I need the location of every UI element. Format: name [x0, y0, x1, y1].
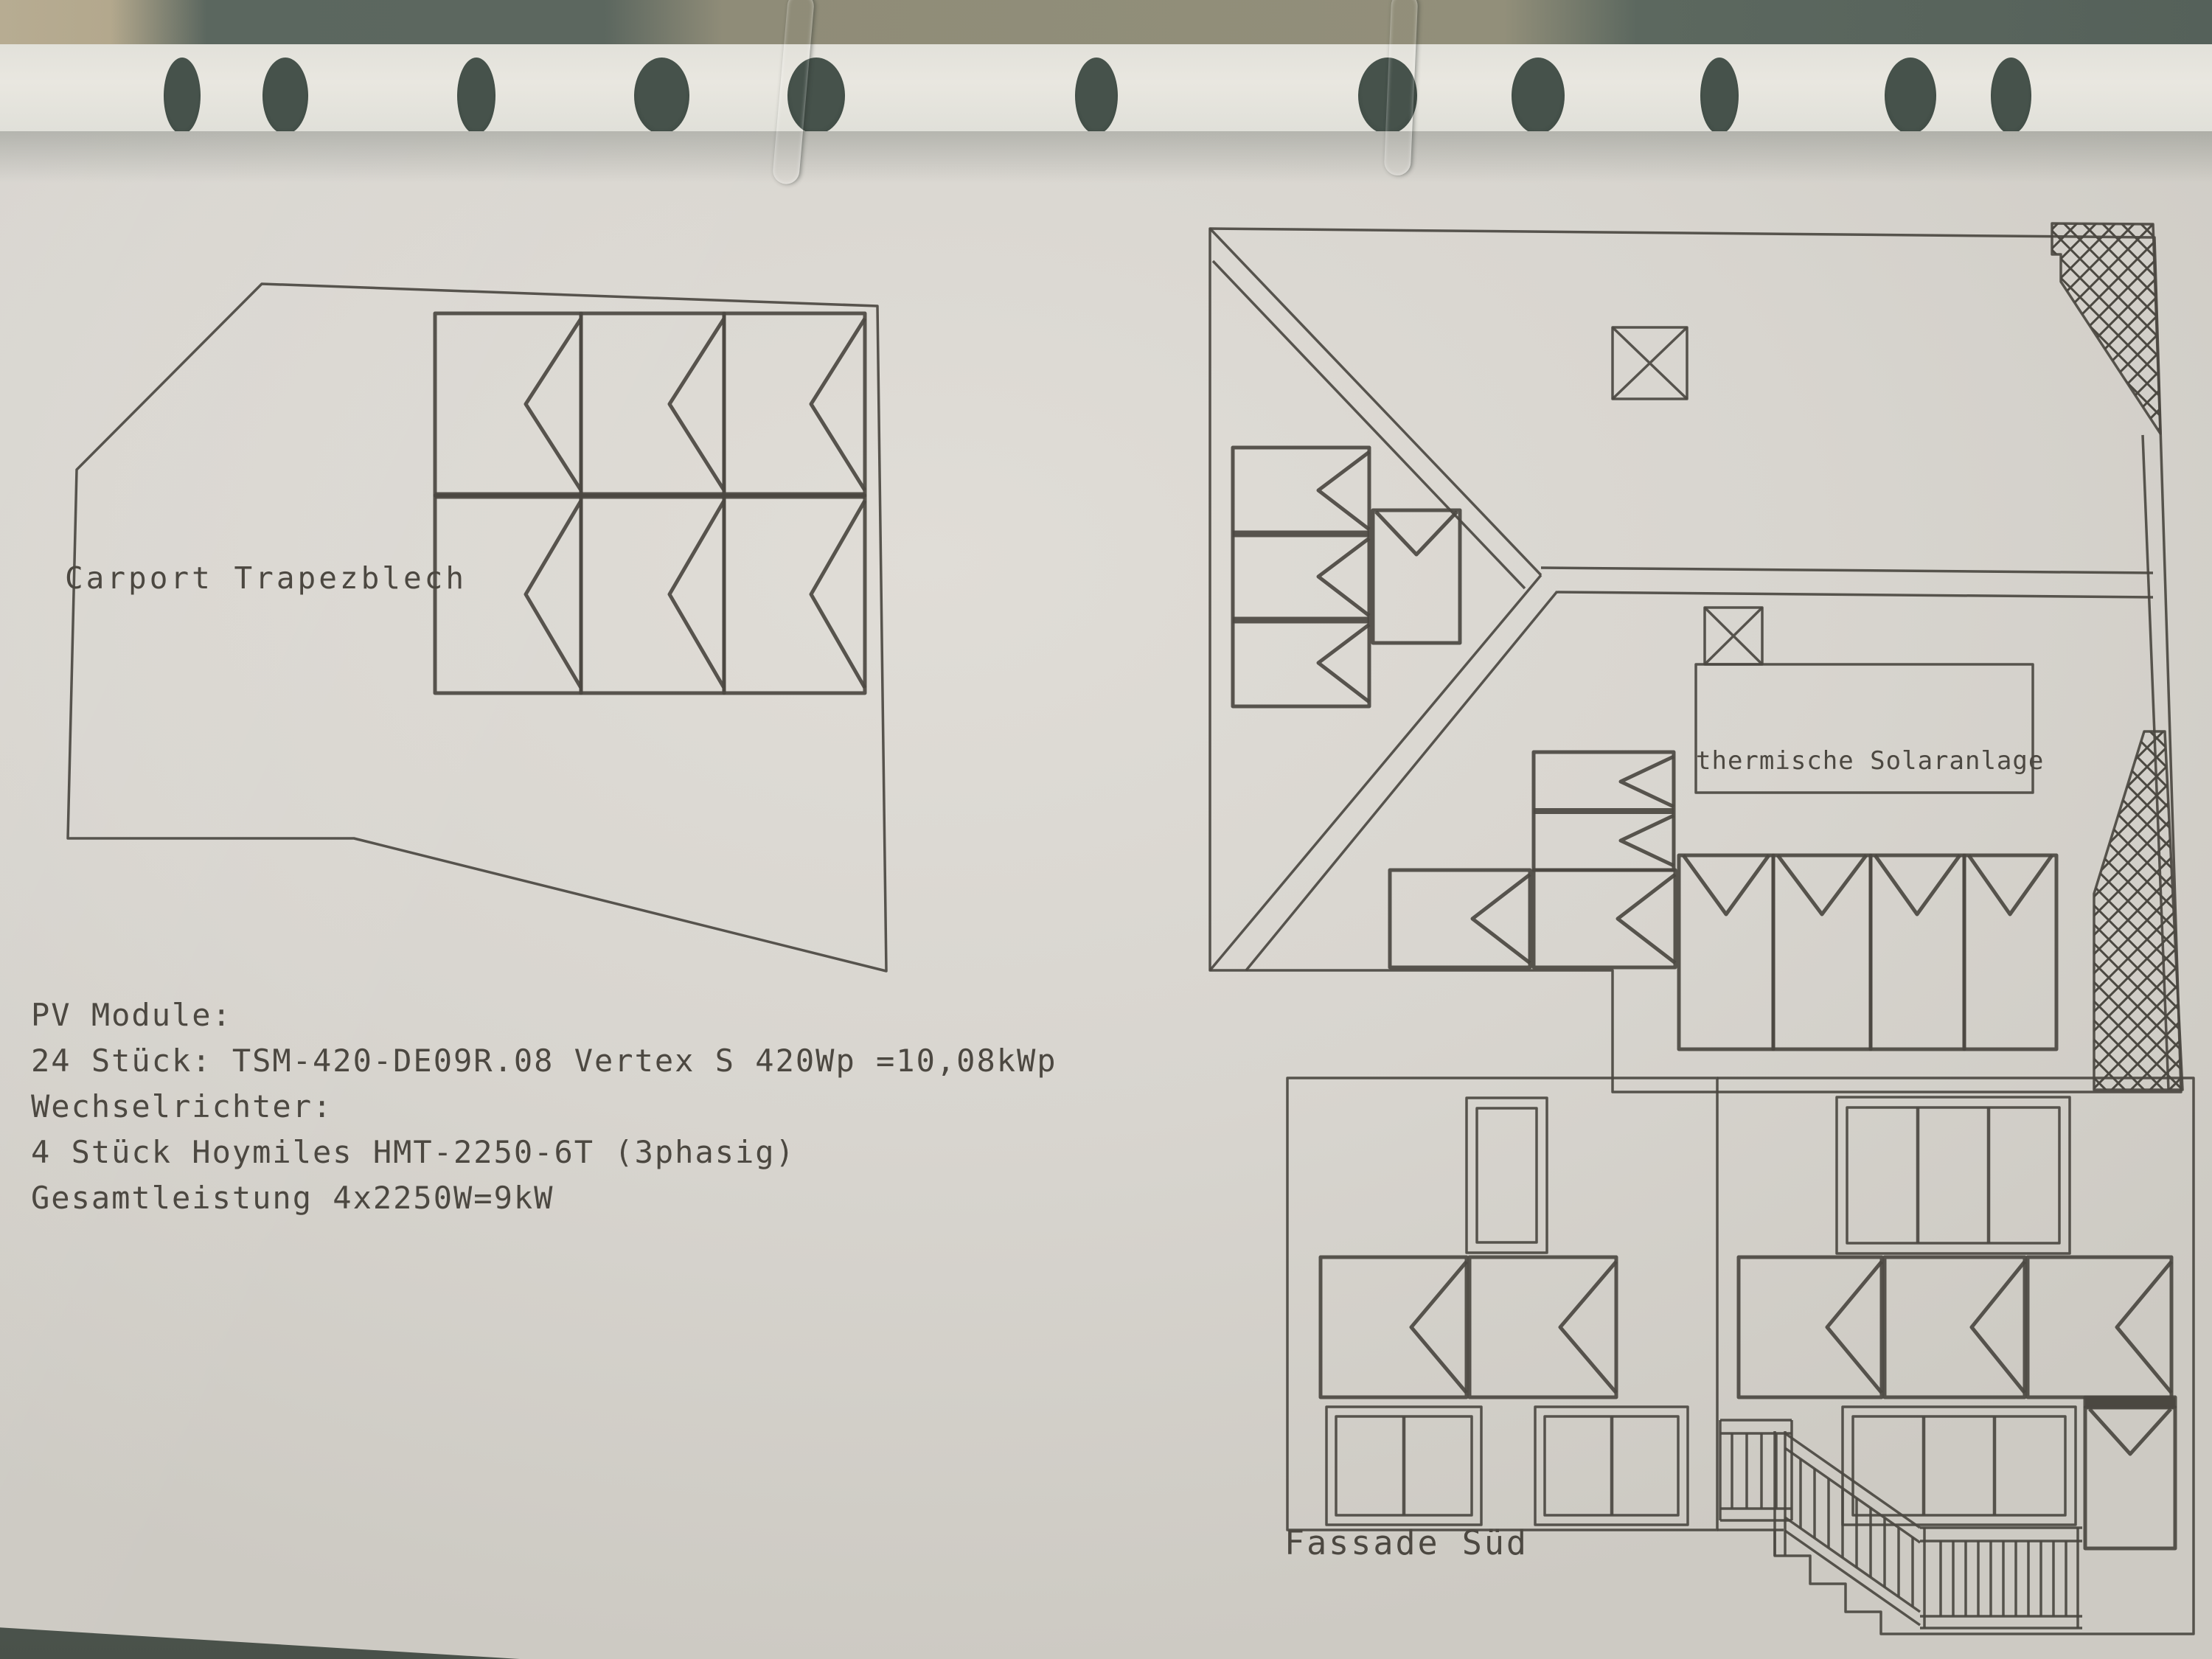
facade-label: Fassade Süd — [1284, 1523, 1528, 1562]
photo-of-binder-page: Carport Trapezblech thermische Solaranla… — [0, 0, 2212, 1659]
carport-plan — [68, 284, 886, 971]
module-orientation-markers — [526, 319, 865, 688]
pv-module-detail: 24 Stück: TSM-420-DE09R.08 Vertex S 420W… — [31, 1038, 1057, 1084]
pv-module-header: PV Module: — [31, 992, 1057, 1038]
pv-specification-block: PV Module: 24 Stück: TSM-420-DE09R.08 Ve… — [31, 992, 1057, 1221]
carport-label: Carport Trapezblech — [65, 560, 467, 596]
inverter-header: Wechselrichter: — [31, 1084, 1057, 1130]
total-power-line: Gesamtleistung 4x2250W=9kW — [31, 1175, 1057, 1221]
inverter-detail: 4 Stück Hoymiles HMT-2250-6T (3phasig) — [31, 1130, 1057, 1175]
roof-plan — [1210, 223, 2183, 1092]
pv-layout-drawing — [0, 0, 2212, 1659]
thermal-solar-label: thermische Solaranlage — [1696, 746, 2033, 776]
skylight-symbol — [1613, 327, 1762, 664]
